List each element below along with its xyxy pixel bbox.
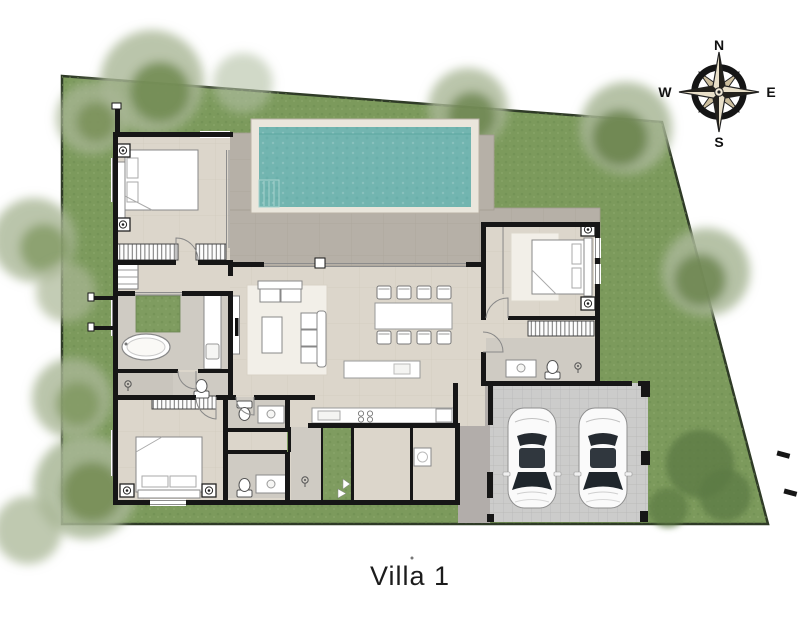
shrub <box>699 469 751 521</box>
compass-rose: N E S W <box>658 37 775 150</box>
coffee-table <box>262 317 282 353</box>
sink <box>206 344 219 359</box>
floorplan-page: N E S W Villa 1 <box>0 0 800 624</box>
pillow <box>572 244 581 264</box>
wardrobe <box>196 244 226 260</box>
tree <box>213 53 273 113</box>
compass-south-label: S <box>714 134 723 150</box>
kitchen-sink <box>318 411 340 420</box>
sink <box>267 410 275 418</box>
pillow <box>572 268 581 288</box>
site-plan: N E S W Villa 1 <box>0 0 800 624</box>
bedside-lamp <box>202 484 216 497</box>
dining-chair <box>437 331 451 344</box>
tub-faucet <box>125 343 128 346</box>
dining-chair <box>377 331 391 344</box>
compass-east-label: E <box>766 84 775 100</box>
dining-chair <box>397 286 411 299</box>
sofa <box>301 311 326 367</box>
column <box>315 258 325 268</box>
pillow <box>170 476 196 487</box>
dining-chair <box>397 331 411 344</box>
bedside-lamp <box>120 484 134 497</box>
bedside-lamp <box>116 144 130 157</box>
bedside-lamp <box>116 218 130 231</box>
dining-table <box>375 303 452 329</box>
bedside-lamp <box>581 297 595 310</box>
linen-closet <box>116 263 138 289</box>
compass-north-label: N <box>714 37 724 53</box>
dining-chair <box>377 286 391 299</box>
shrub <box>648 488 688 528</box>
dining-chair <box>437 286 451 299</box>
car <box>574 408 632 508</box>
car <box>503 408 561 508</box>
fridge <box>436 409 452 422</box>
wardrobe <box>528 321 594 336</box>
tree <box>36 262 96 322</box>
swimming-pool <box>251 119 479 213</box>
pillow <box>127 182 138 202</box>
dining-chair <box>417 286 431 299</box>
tree <box>32 358 112 438</box>
headboard <box>138 490 200 498</box>
plan-title: Villa 1 <box>370 561 450 591</box>
dining-chair <box>417 331 431 344</box>
wardrobe <box>116 244 178 260</box>
sofa <box>258 281 302 302</box>
sink <box>517 364 525 372</box>
tree <box>662 228 750 316</box>
island-sink <box>394 364 410 374</box>
pillow <box>142 476 168 487</box>
stray-dot <box>411 557 414 560</box>
garage <box>458 383 648 523</box>
headboard <box>117 162 125 220</box>
pillow <box>127 158 138 178</box>
utility-rooms <box>414 448 431 466</box>
compass-west-label: W <box>658 84 672 100</box>
sink <box>267 480 275 488</box>
headboard <box>584 238 592 296</box>
washing-machine <box>414 448 431 466</box>
